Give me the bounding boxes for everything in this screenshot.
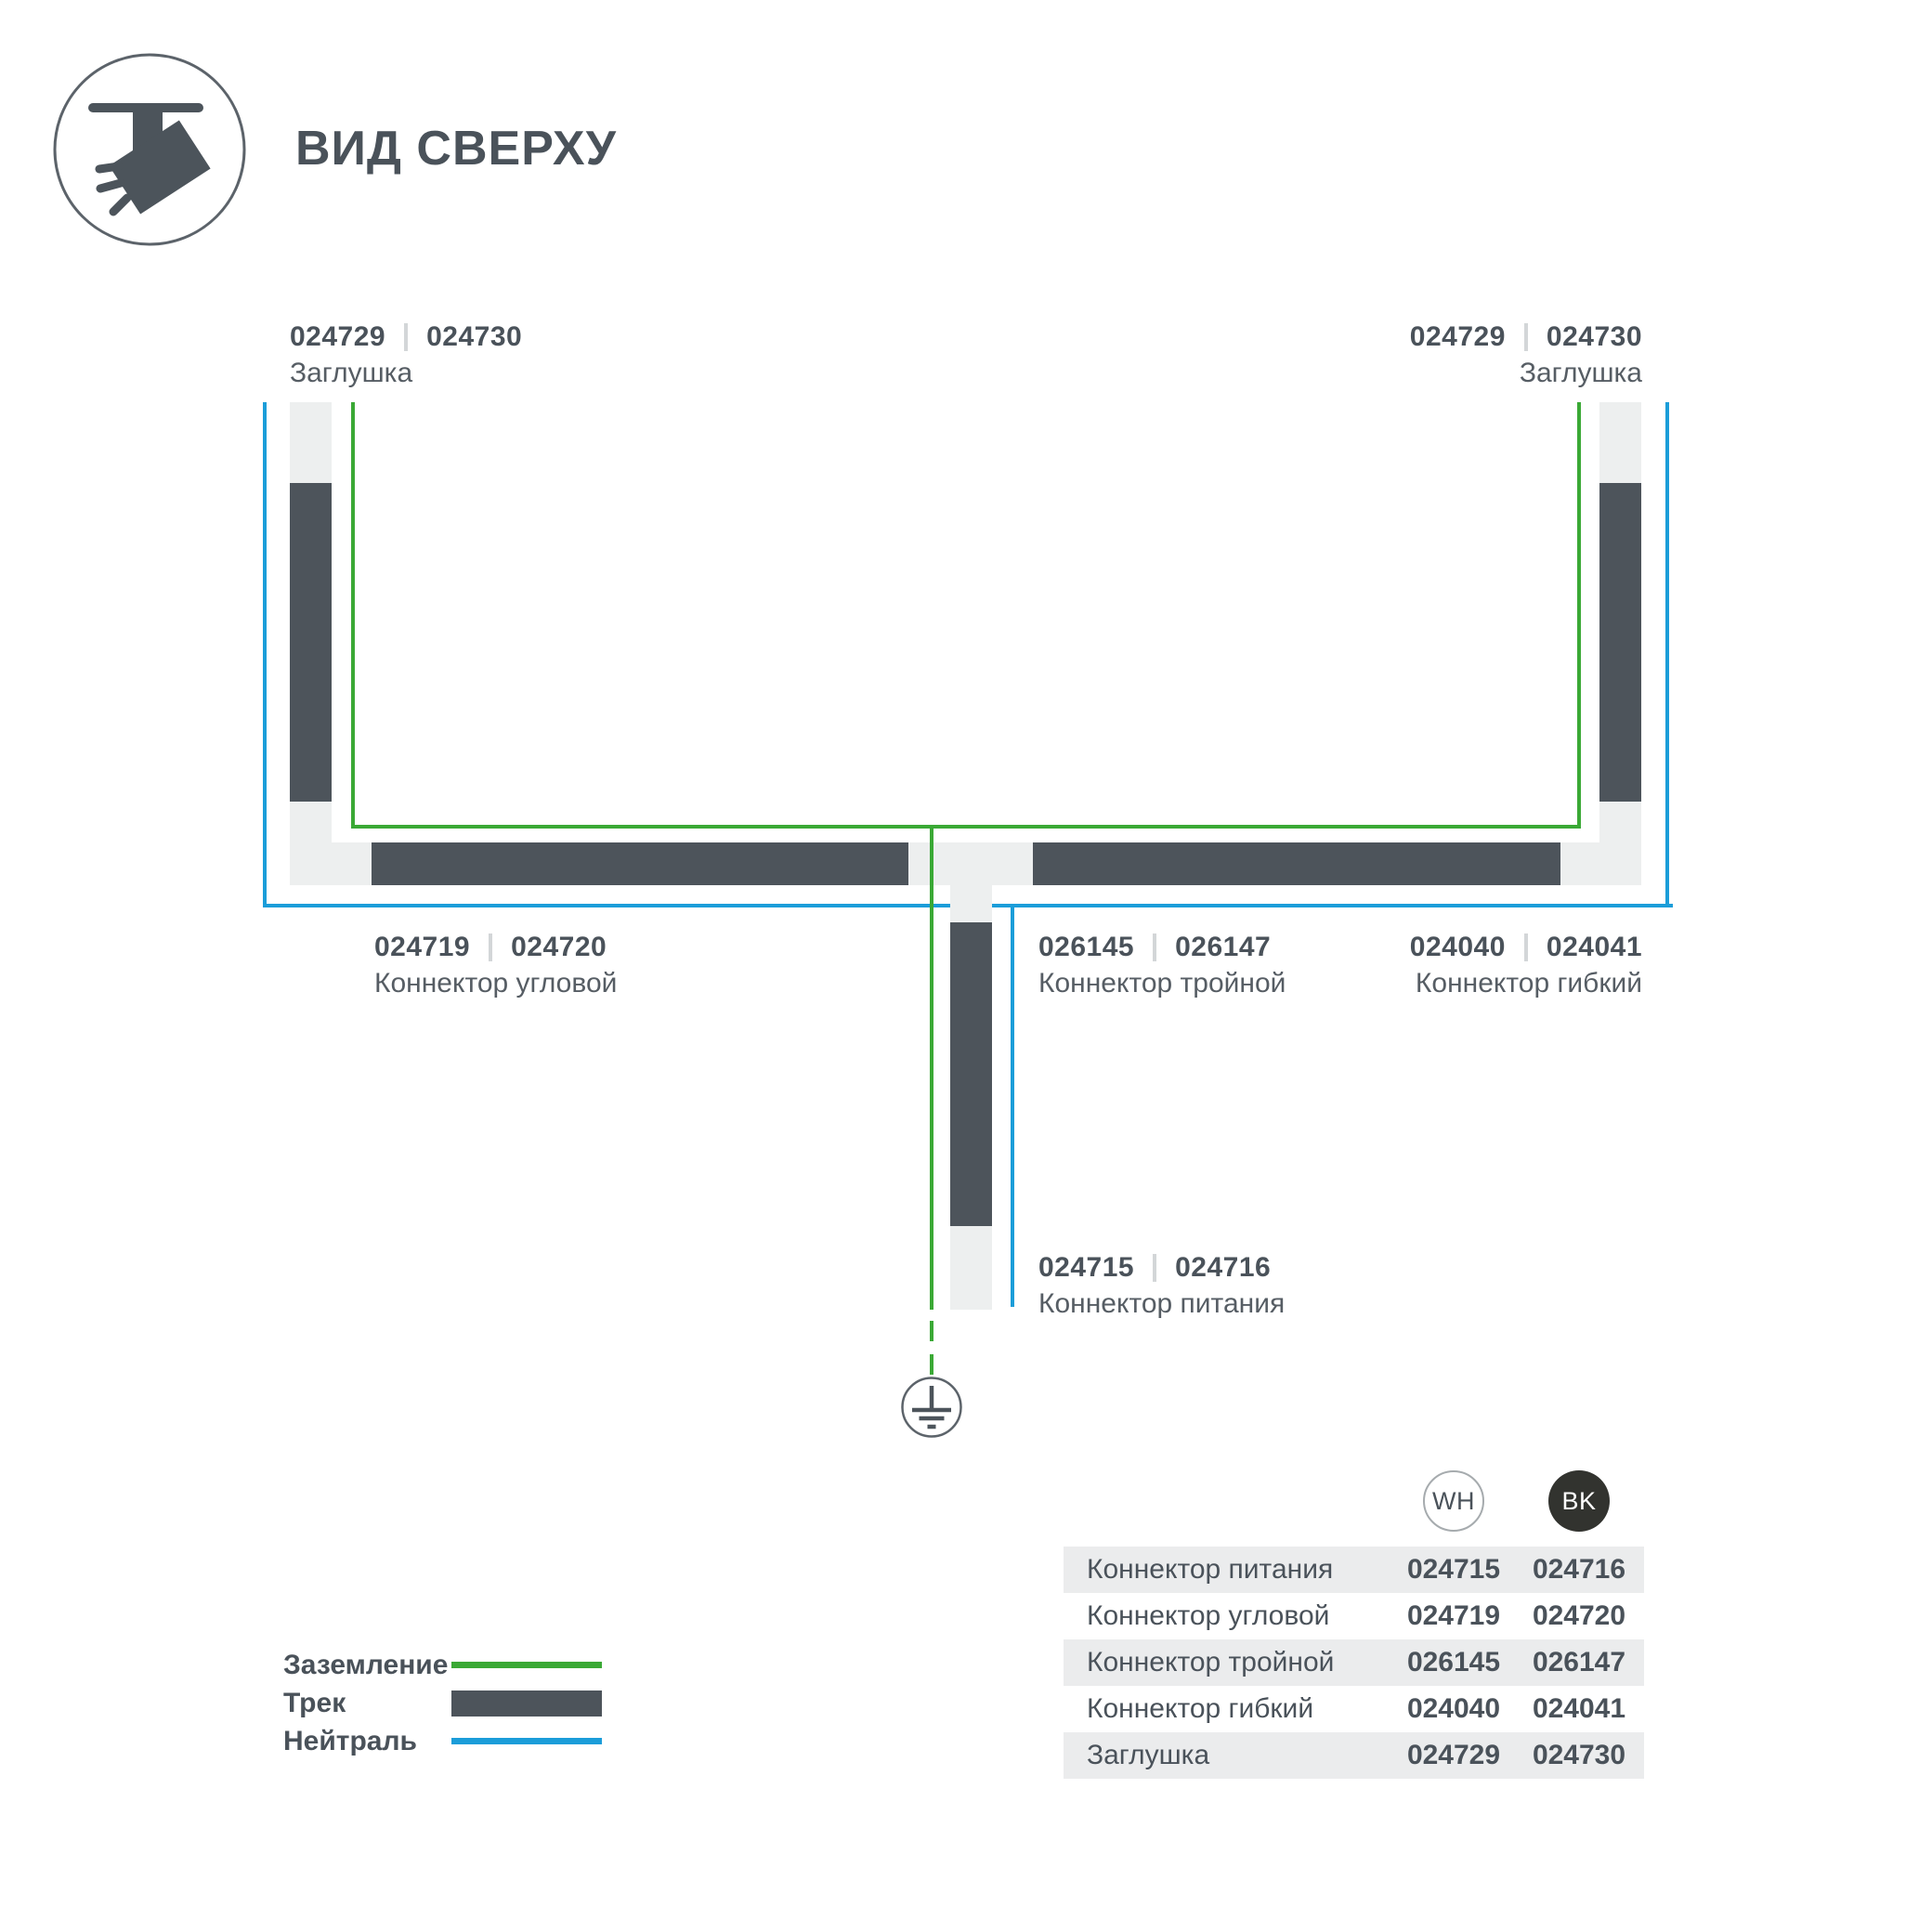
legend-swatch-track [451, 1690, 602, 1717]
page-title: ВИД СВЕРХУ [295, 121, 617, 176]
endcap-left [290, 402, 332, 483]
row-name: Коннектор угловой [1064, 1600, 1393, 1632]
label-triple-codes: 026145 026147 [1038, 932, 1286, 963]
label-power-codes: 024715 024716 [1038, 1252, 1285, 1284]
code-separator [1524, 323, 1528, 351]
color-badge-black: BK [1548, 1470, 1610, 1532]
code-bk: 024720 [511, 932, 607, 963]
code-separator [404, 323, 408, 351]
row-code-bk: 026147 [1514, 1647, 1644, 1678]
label-corner-codes: 024719 024720 [374, 932, 617, 963]
row-code-wh: 024040 [1393, 1693, 1514, 1725]
ground-line-bottom [351, 825, 1581, 829]
track-segment-right [1599, 483, 1641, 802]
ground-line-right [1577, 402, 1581, 829]
ground-line-dashed [930, 1321, 933, 1377]
label-caption: Коннектор тройной [1038, 968, 1286, 999]
code-wh: 024719 [374, 932, 470, 963]
legend-row-neutral: Нейтраль [283, 1722, 602, 1760]
row-code-wh: 024719 [1393, 1600, 1514, 1632]
neutral-line-left [263, 402, 267, 907]
code-wh: 024729 [290, 321, 385, 353]
label-caption: Коннектор питания [1038, 1288, 1285, 1320]
legend: Заземление Трек Нейтраль [283, 1646, 602, 1760]
label-endcap-left: 024729 024730 Заглушка [290, 321, 522, 389]
track-spotlight-top-view-icon [51, 51, 248, 248]
code-bk: 024716 [1175, 1252, 1271, 1284]
legend-row-ground: Заземление [283, 1646, 602, 1684]
legend-swatch-neutral [451, 1738, 602, 1744]
label-caption: Коннектор угловой [374, 968, 617, 999]
row-code-bk: 024716 [1514, 1554, 1644, 1586]
tee-connector-bar [908, 842, 1033, 885]
power-connector-body [950, 1226, 992, 1310]
table-row: Коннектор угловой 024719 024720 [1064, 1593, 1644, 1639]
label-flexible-connector: 024040 024041 Коннектор гибкий [1410, 932, 1642, 999]
code-separator [1524, 933, 1528, 961]
code-wh: 026145 [1038, 932, 1134, 963]
code-wh: 024729 [1410, 321, 1506, 353]
legend-row-track: Трек [283, 1684, 602, 1722]
code-separator [1153, 1254, 1156, 1282]
legend-label-ground: Заземление [283, 1650, 451, 1681]
label-endcap-left-codes: 024729 024730 [290, 321, 522, 353]
track-bar-swatch [451, 1690, 602, 1717]
row-code-bk: 024041 [1514, 1693, 1644, 1725]
row-name: Коннектор питания [1064, 1554, 1393, 1586]
tee-connector-stem [950, 885, 992, 922]
label-caption: Коннектор гибкий [1416, 968, 1642, 999]
earth-ground-icon [900, 1376, 963, 1439]
label-flexible-codes: 024040 024041 [1410, 932, 1642, 963]
corner-connector-right-horizontal [1560, 842, 1641, 885]
row-code-bk: 024730 [1514, 1740, 1644, 1771]
code-separator [489, 933, 492, 961]
code-bk: 026147 [1175, 932, 1271, 963]
legend-swatch-ground [451, 1662, 602, 1668]
table-row: Коннектор питания 024715 024716 [1064, 1547, 1644, 1593]
track-segment-stem [950, 922, 992, 1226]
neutral-line-power-branch [1011, 906, 1014, 1307]
legend-label-neutral: Нейтраль [283, 1726, 451, 1757]
row-code-wh: 026145 [1393, 1647, 1514, 1678]
parts-table-header: WH BK [1064, 1470, 1644, 1532]
neutral-line-right [1665, 402, 1669, 907]
table-row: Заглушка 024729 024730 [1064, 1732, 1644, 1779]
label-caption: Заглушка [290, 358, 522, 389]
track-segment-bottom-right [1033, 842, 1560, 885]
label-corner-connector: 024719 024720 Коннектор угловой [374, 932, 617, 999]
code-bk: 024041 [1547, 932, 1642, 963]
label-power-connector: 024715 024716 Коннектор питания [1038, 1252, 1285, 1320]
label-endcap-right: 024729 024730 Заглушка [1410, 321, 1642, 389]
page: ВИД СВЕРХУ 024729 024730 [0, 0, 1932, 1932]
row-name: Коннектор гибкий [1064, 1693, 1393, 1725]
code-bk: 024730 [426, 321, 522, 353]
table-row: Коннектор тройной 026145 026147 [1064, 1639, 1644, 1686]
row-code-wh: 024729 [1393, 1740, 1514, 1771]
color-badge-white: WH [1423, 1470, 1484, 1532]
parts-table: WH BK Коннектор питания 024715 024716 Ко… [1064, 1470, 1644, 1779]
label-caption: Заглушка [1520, 358, 1642, 389]
endcap-right [1599, 402, 1641, 483]
table-row: Коннектор гибкий 024040 024041 [1064, 1686, 1644, 1732]
row-code-wh: 024715 [1393, 1554, 1514, 1586]
code-wh: 024040 [1410, 932, 1506, 963]
label-triple-connector: 026145 026147 Коннектор тройной [1038, 932, 1286, 999]
row-name: Заглушка [1064, 1740, 1393, 1771]
ground-line-power-branch [930, 825, 933, 1310]
label-endcap-right-codes: 024729 024730 [1410, 321, 1642, 353]
corner-connector-left-horizontal [290, 842, 372, 885]
code-separator [1153, 933, 1156, 961]
neutral-line-swatch [451, 1738, 602, 1744]
ground-line-swatch [451, 1662, 602, 1668]
row-code-bk: 024720 [1514, 1600, 1644, 1632]
legend-label-track: Трек [283, 1688, 451, 1719]
track-segment-left [290, 483, 332, 802]
code-wh: 024715 [1038, 1252, 1134, 1284]
code-bk: 024730 [1547, 321, 1642, 353]
row-name: Коннектор тройной [1064, 1647, 1393, 1678]
ground-line-left [351, 402, 355, 829]
track-segment-bottom-left [372, 842, 908, 885]
